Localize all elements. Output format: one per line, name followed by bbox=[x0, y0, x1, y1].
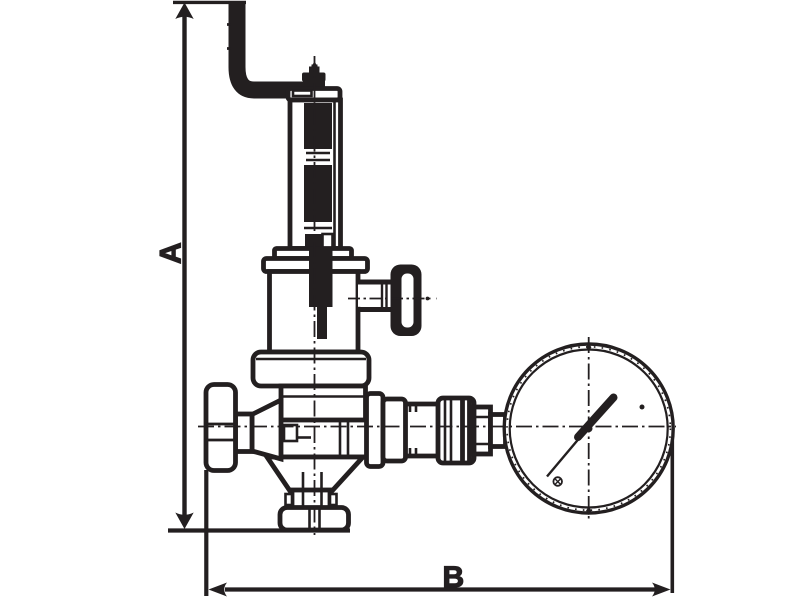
svg-text:A: A bbox=[154, 242, 187, 264]
svg-text:B: B bbox=[443, 561, 465, 594]
